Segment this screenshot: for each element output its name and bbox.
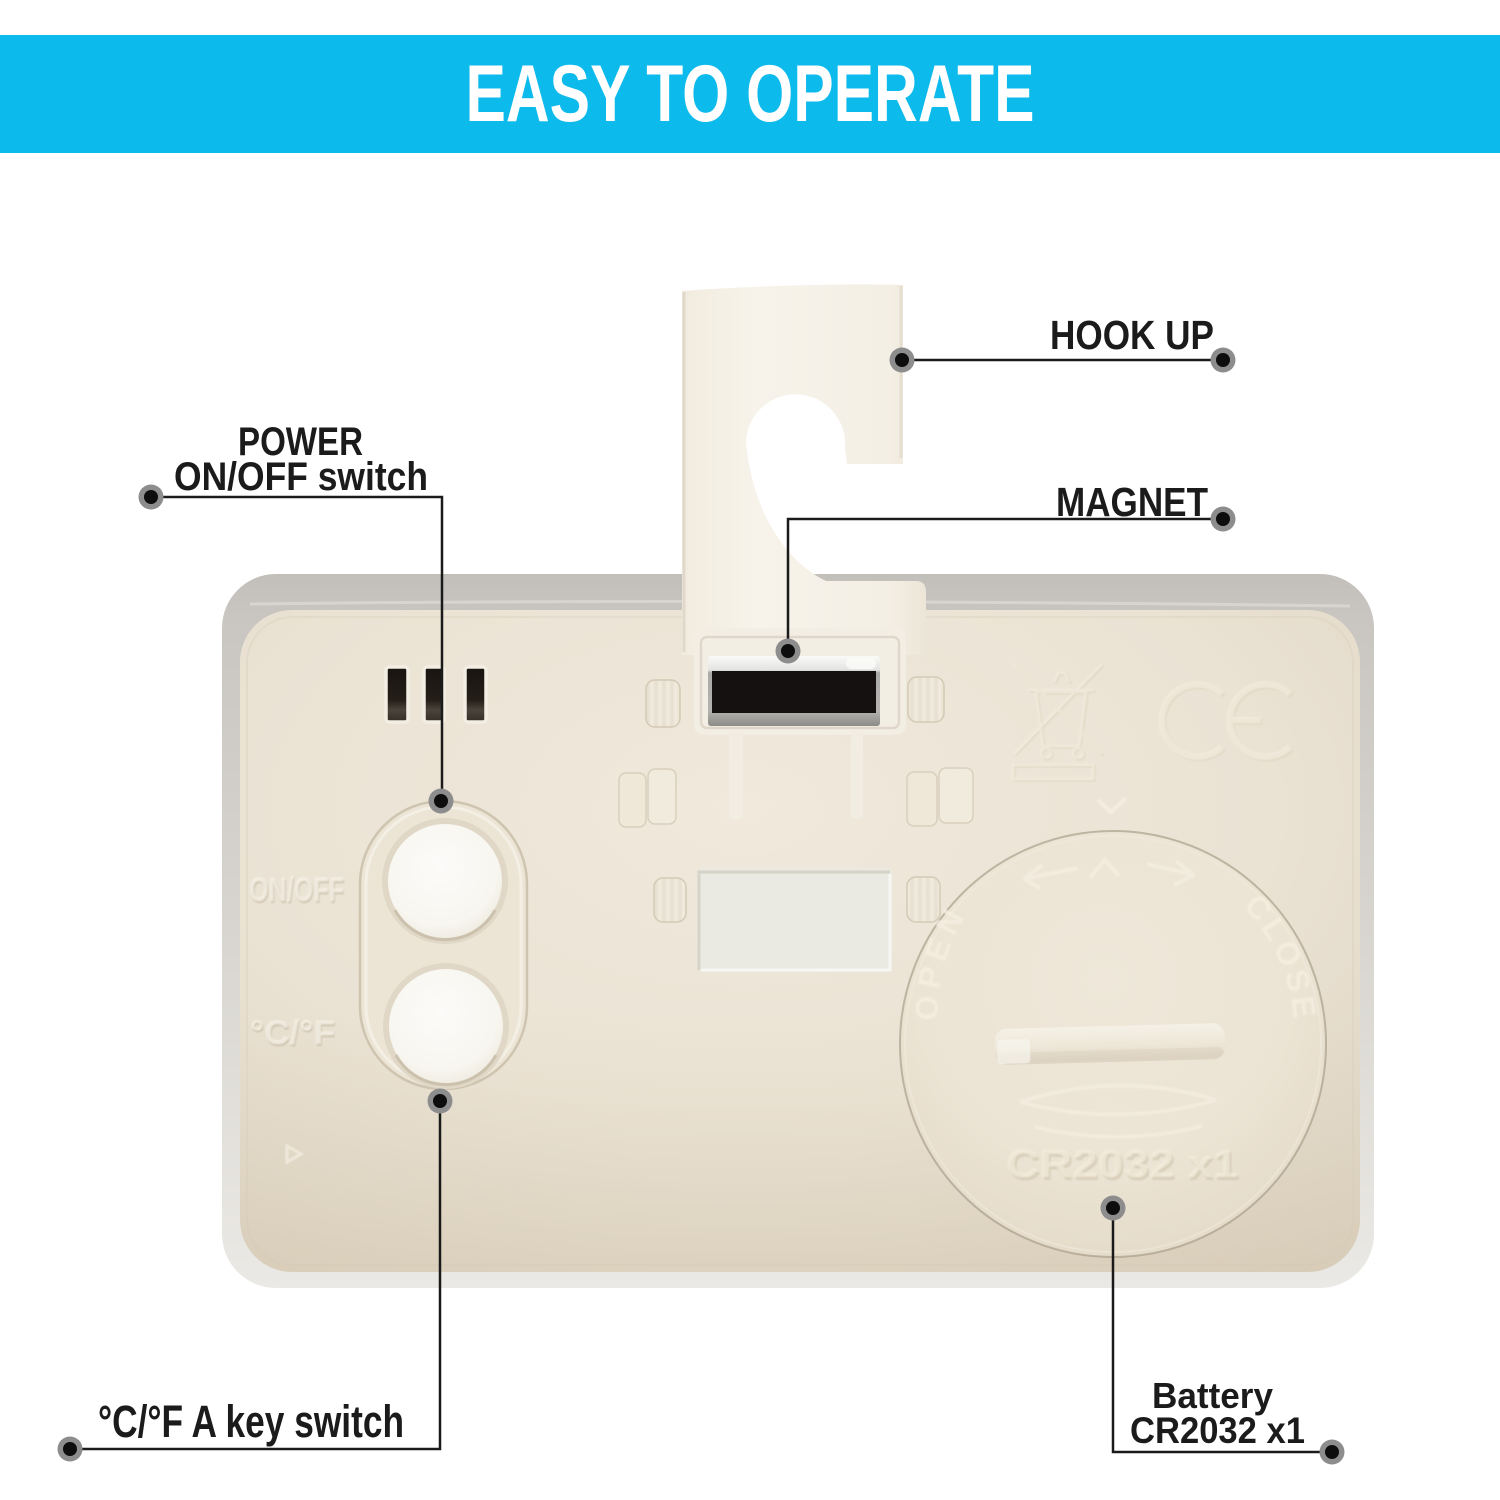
svg-text:CR2032 x1: CR2032 x1 — [1006, 1142, 1238, 1186]
svg-text:HOOK UP: HOOK UP — [1050, 312, 1214, 358]
svg-text:EASY TO OPERATE: EASY TO OPERATE — [466, 49, 1035, 139]
svg-text:MAGNET: MAGNET — [1056, 479, 1208, 525]
svg-text:ON/OFF: ON/OFF — [249, 871, 344, 909]
svg-text:ON/OFF switch: ON/OFF switch — [174, 455, 428, 499]
svg-text:CR2032 x1: CR2032 x1 — [1130, 1410, 1305, 1451]
svg-text:°C/°F A key switch: °C/°F A key switch — [98, 1396, 404, 1447]
svg-text:°C/°F: °C/°F — [250, 1014, 335, 1052]
